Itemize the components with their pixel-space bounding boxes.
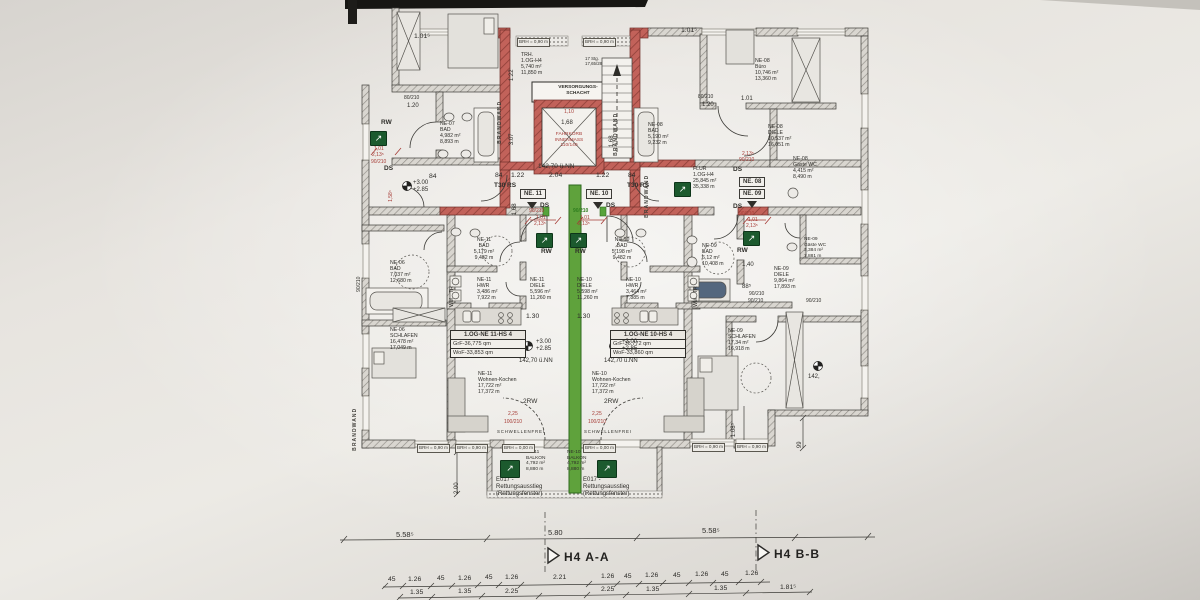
brh-se-2: BRH = 0,90 m xyxy=(735,443,768,452)
level-west: +3.00 +2.85 xyxy=(413,180,428,194)
brandwand-right: BRANDWAND xyxy=(614,113,620,156)
door-ne11-size: 90/210 xyxy=(529,209,544,215)
level-nn-ne11: 142,70 ü.NN xyxy=(519,358,553,365)
floorplan-photo: TRH. 1.OG-H4 5,740 m² 11,850 m 17 Stg. 1… xyxy=(0,0,1200,600)
chain2-0: 1.35 xyxy=(410,589,423,596)
balcony-door-ne11-width: 2,25 xyxy=(508,412,518,418)
balcony-door-ne10-width: 2,25 xyxy=(592,412,602,418)
balcony-door-ne10-size: 100/210 xyxy=(588,420,606,426)
unit-tag-ne08: NE. 08 xyxy=(739,177,765,187)
escape-route-icon-ne11: ↗ xyxy=(536,233,553,248)
chain1-11: 1.26 xyxy=(695,571,708,578)
door-ne09-size: 90/210 xyxy=(749,292,764,298)
room-ne10-wohnen: NE-10 Wohnen-Kochen 17,722 m² 17,372 m xyxy=(592,371,631,396)
chain1-5: 1.26 xyxy=(505,574,518,581)
door-buero-size: 80/210 xyxy=(698,95,713,101)
level-nn-east-partial: 142, xyxy=(808,374,820,381)
stair-steps-label: 17 Stg. 17,65/28 xyxy=(585,56,602,66)
room-ne08-buero: NE-08 Büro 10,746 m² 13,360 m xyxy=(755,58,778,83)
chain1-4: 45 xyxy=(485,574,493,581)
schwellenfrei-ne10: SCHWELLENFREI xyxy=(584,429,632,434)
washer-label-ne11: WM xyxy=(450,298,456,307)
room-ne09-gaestewc: NE-09 Gäste WC 3,384 m² 7,881 m xyxy=(804,237,826,260)
chain1-13: 1.26 xyxy=(745,570,758,577)
exit-arrow-glyph: ↗ xyxy=(541,235,549,245)
fahrkorb-label: FAHRKORB INNENMASS 110/140 xyxy=(547,132,591,149)
room-ne11-balkon: NE-11 BALKON 4,792 m² 8,880 m xyxy=(526,450,545,473)
dim-120-west: 1.20 xyxy=(407,103,419,110)
chain1-12: 45 xyxy=(721,571,729,578)
brh-top-right: BRH = 0,90 m xyxy=(583,38,616,47)
washer-label-ne10: WM xyxy=(694,298,700,307)
chain2-6: 1.81⁵ xyxy=(780,584,796,591)
dim-122-vert: 1.22 xyxy=(509,69,516,81)
level-nn-ne10: 142,70 ü.NN xyxy=(604,358,638,365)
door-west-height: 2,13⁵ xyxy=(372,153,384,159)
unit-tag-ne09: NE. 09 xyxy=(739,189,765,199)
dim-101-east: 1.01 xyxy=(741,96,753,103)
chain1-7: 1.26 xyxy=(601,573,614,580)
rescue-exit-icon-ne10: ↗ xyxy=(597,460,617,478)
room-ne09-bad: NE-09 BAD 6,12 m² 10,408 m xyxy=(702,243,724,268)
dim-1085-east: 1.08⁵ xyxy=(731,423,738,437)
schwellenfrei-ne11: SCHWELLENFREI xyxy=(497,429,545,434)
dim-130-ne10: 1.30 xyxy=(577,313,590,320)
unit-tag-ne11: NE. 11 xyxy=(520,189,546,199)
ds-label-east-top: DS xyxy=(733,166,742,174)
exit-arrow-glyph: ↗ xyxy=(679,184,687,194)
escape-route-icon-ne10: ↗ xyxy=(570,233,587,248)
brandwand-left: BRANDWAND xyxy=(498,101,504,144)
elevator-depth-dim: 1,68 xyxy=(552,120,582,127)
chain2-4: 1.35 xyxy=(646,586,659,593)
level-ne11: +3.00 +2.85 xyxy=(536,339,551,353)
brandwand-corridor: BRANDWAND xyxy=(645,175,651,218)
chain1-8: 45 xyxy=(624,573,632,580)
rw2-label-ne10: 2RW xyxy=(604,398,618,406)
door-west-size: 80/210 xyxy=(404,96,419,102)
door-ne10-height: 2,13⁵ xyxy=(578,222,590,228)
dim-122-left: 1.22 xyxy=(511,172,524,179)
dim-1015-right: 1.01⁵ xyxy=(681,27,697,34)
room-ne07-bad: NE-07 BAD 4,982 m² 8,893 m xyxy=(440,121,460,146)
trh-label: TRH. 1.OG-H4 5,740 m² 11,850 m xyxy=(521,52,542,77)
brh-se-1: BRH = 0,90 m xyxy=(692,443,725,452)
chain2-1: 1.35 xyxy=(458,588,471,595)
room-flur: FLUR 1.OG-H4 25,845 m² 35,338 m xyxy=(693,166,716,191)
room-ne09-schlafen: NE-09 SCHLAFEN 17,34 m² 16,918 m xyxy=(728,328,756,353)
door-ne09-schlafen-size: 90/210 xyxy=(748,299,763,305)
chain1-0: 45 xyxy=(388,576,396,583)
e017-label-ne11: E017 - Rettungsausstieg (Rettungsfenster… xyxy=(496,477,542,498)
ds-label-east-bottom: DS xyxy=(733,203,742,211)
dryer-label-ne10: TR xyxy=(694,286,700,293)
dim-200-balcony: 2.00 xyxy=(454,482,461,494)
unit-ne11-wof: WoF-33,853 qm xyxy=(451,349,525,357)
dim-168-corridor: 1,68 xyxy=(512,203,519,215)
brh-sw-2: BRH = 0,90 m xyxy=(455,444,488,453)
ds-pointer-ne10 xyxy=(593,202,603,209)
elevator-width-dim: 1,10 xyxy=(554,110,584,116)
section-marker-a: H4 A-A xyxy=(564,550,610,564)
ds-label-west: DS xyxy=(384,165,393,173)
room-ne08-gaestewc: NE-08 Gäste WC 4,415 m² 8,490 m xyxy=(793,156,817,181)
dim-580: 5.80 xyxy=(548,528,563,537)
ds-pointer-east xyxy=(747,201,757,208)
door-ne06-size: 90/210 xyxy=(357,277,363,292)
escape-route-icon-flur: ↗ xyxy=(674,182,691,197)
door-west-size2: 90/210 xyxy=(371,160,386,166)
dim-140-east: 1,40 xyxy=(742,262,754,269)
dim-120-east: 1.20 xyxy=(702,102,714,109)
room-ne08-diele: NE-08 DIELE 10,537 m² 16,051 m xyxy=(768,124,791,149)
ds-label-ne10: DS xyxy=(606,202,615,210)
rw-label-ne11: RW xyxy=(541,248,552,256)
brh-top-left: BRH = 0,90 m xyxy=(517,38,550,47)
room-ne10-diele: NE-10 DIELE 5,598 m² 11,260 m xyxy=(577,277,598,302)
dim-204: 2.04 xyxy=(549,172,562,179)
e017-label-ne10: E017 - Rettungsausstieg (Rettungsfenster… xyxy=(583,477,629,498)
dim-130-ne11: 1.30 xyxy=(526,313,539,320)
door-east-bottom-height: 2,13⁵ xyxy=(746,224,758,230)
rw-label-ne10: RW xyxy=(575,248,586,256)
brh-balcony-door-ne10: BRH = 0,00 m xyxy=(583,444,616,453)
rescue-exit-icon-ne11: ↗ xyxy=(500,460,520,478)
escape-route-icon-east: ↗ xyxy=(743,231,760,246)
t30-door-left: T30 RS xyxy=(494,182,516,190)
unit-ne11-grf: GrF-36,775 qm xyxy=(451,340,525,349)
balcony-door-ne11-size: 100/210 xyxy=(504,420,522,426)
dim-84-west: 84 xyxy=(429,173,437,180)
dim-558-left: 5.58⁵ xyxy=(396,530,414,539)
chain1-9: 1.26 xyxy=(645,572,658,579)
dim-558-right: 5.58⁵ xyxy=(702,526,720,535)
dim-1015-left: 1.01⁵ xyxy=(414,33,430,40)
escape-route-icon-west: ↗ xyxy=(370,131,387,146)
chain1-3: 1.26 xyxy=(458,575,471,582)
level-ne10: +3.00 +2.85 xyxy=(622,339,637,353)
rw-label-east: RW xyxy=(737,247,748,255)
chain1-2: 45 xyxy=(437,575,445,582)
exit-arrow-glyph: ↗ xyxy=(575,235,583,245)
exit-arrow-glyph: ↗ xyxy=(506,463,514,473)
door-east-top-size: 90/210 xyxy=(739,158,754,164)
corridor-level-label: 142,70 ü.NN xyxy=(538,163,575,171)
dim-307-vert: 3.07 xyxy=(509,133,516,145)
chain1-10: 45 xyxy=(673,572,681,579)
room-ne11-bad: NE-11 BAD 5,179 m² 9,482 m xyxy=(466,237,502,262)
dim-122-right: 1.22 xyxy=(596,172,609,179)
door-ne11-height: 2,13⁵ xyxy=(534,222,546,228)
room-ne11-hwr: NE-11 HWR 3,486 m² 7,922 m xyxy=(477,277,497,302)
dim-99-east: 99 xyxy=(797,441,804,448)
room-ne06-bad: NE-06 BAD 7,037 m² 12,680 m xyxy=(390,260,412,285)
unit-ne11-titlebox: 1.OG-NE 11-HS 4 GrF-36,775 qm WoF-33,853… xyxy=(450,330,526,358)
room-ne10-hwr: NE-10 HWR 3,464 m² 7,885 m xyxy=(626,277,646,302)
room-ne09-diele: NE-09 DIELE 9,864 m² 17,893 m xyxy=(774,266,796,291)
chain1-1: 1.26 xyxy=(408,576,421,583)
brh-sw-1: BRH = 0,90 m xyxy=(417,444,450,453)
chain2-3: 2.25 xyxy=(601,586,614,593)
dimension-chains xyxy=(340,406,875,600)
brandwand-southwest: BRANDWAND xyxy=(353,408,359,451)
room-ne11-diele: NE-11 DIELE 5,596 m² 11,260 m xyxy=(530,277,551,302)
chain2-5: 1.35 xyxy=(714,585,727,592)
unit-ne11-title: 1.OG-NE 11-HS 4 xyxy=(451,331,525,340)
room-ne10-balkon: NE-10 BALKON 4,792 m² 8,880 m xyxy=(567,450,586,473)
room-ne06-schlafen: NE-06 SCHLAFEN 16,478 m² 17,049 m xyxy=(390,327,418,352)
exit-arrow-glyph: ↗ xyxy=(375,133,383,143)
exit-arrow-glyph: ↗ xyxy=(603,463,611,473)
dryer-label-ne11: TR xyxy=(450,286,456,293)
schacht-label: VERSORGUNGS- SCHACHT xyxy=(536,85,620,96)
dim-1585-west: 1,58⁵ xyxy=(389,190,395,202)
dim-84-left: 84 xyxy=(495,172,503,179)
door-ne10-size: 90/210 xyxy=(573,209,588,215)
unit-tag-ne10: NE. 10 xyxy=(586,189,612,199)
rw-label-west: RW xyxy=(381,119,392,127)
room-ne11-wohnen: NE-11 Wohnen-Kochen 17,722 m² 17,372 m xyxy=(478,371,517,396)
door-ne09-east-size: 90/210 xyxy=(806,299,821,305)
rw2-label-ne11: 2RW xyxy=(523,398,537,406)
dim-84-right: 84 xyxy=(628,172,636,179)
room-ne08-bad: NE-08 BAD 5,190 m² 9,232 m xyxy=(648,122,668,147)
exit-arrow-glyph: ↗ xyxy=(748,233,756,243)
chain1-6: 2.21 xyxy=(553,574,566,581)
brh-balcony-door-ne11: BRH = 0,00 m xyxy=(502,444,535,453)
room-ne10-bad: NE-10 BAD 5,198 m² 9,482 m xyxy=(604,237,640,262)
section-marker-b: H4 B-B xyxy=(774,547,820,561)
chain2-2: 2.25 xyxy=(505,588,518,595)
